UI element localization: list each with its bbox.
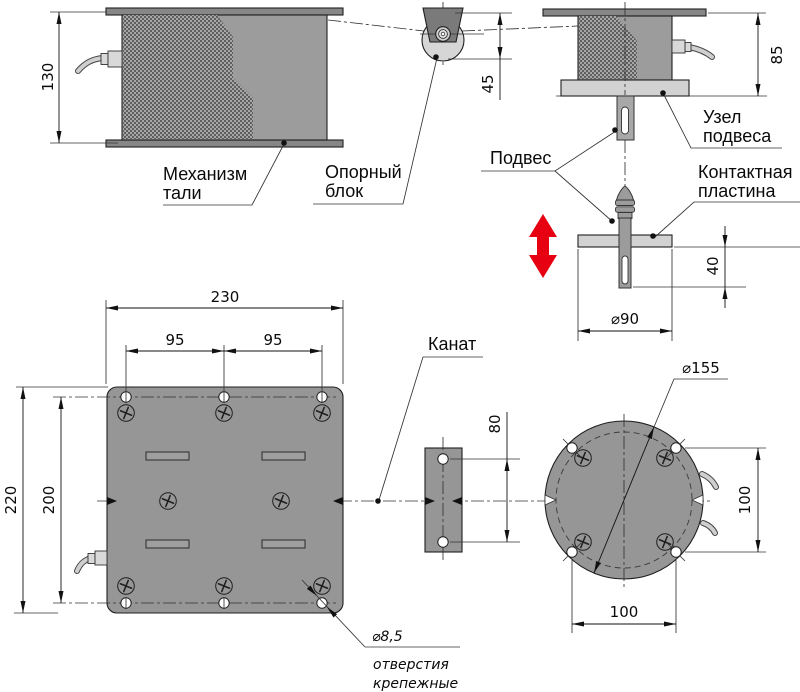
label-rope-text: Канат bbox=[428, 334, 476, 354]
rope-hole-icon bbox=[438, 537, 448, 547]
hoist-bottom-flange bbox=[106, 140, 343, 147]
screw-head-icon bbox=[118, 578, 135, 595]
dim-text-95-right: 95 bbox=[263, 331, 282, 349]
mounting-hole-icon bbox=[671, 547, 681, 557]
mounting-hole-icon bbox=[671, 443, 681, 453]
dim-95-right: 95 bbox=[224, 331, 322, 351]
rope-centerline-right bbox=[462, 26, 578, 31]
dim-130: 130 bbox=[39, 12, 118, 143]
mounting-hole-icon bbox=[317, 598, 327, 608]
leader-dot bbox=[433, 54, 439, 60]
note-line1: отверстия bbox=[373, 657, 449, 673]
dim-text-dia155: ⌀155 bbox=[682, 359, 720, 377]
dim-95-left: 95 bbox=[126, 331, 322, 391]
label-contact-line1: Контактная bbox=[698, 162, 793, 182]
cable-tab-upper-core bbox=[702, 474, 716, 487]
dim-85: 85 bbox=[708, 13, 786, 96]
screw-head-icon bbox=[575, 534, 592, 551]
view-suspension-unit: 85 Узел подвеса bbox=[543, 2, 786, 148]
label-unit-line1: Узел bbox=[703, 107, 741, 127]
screw-head-icon bbox=[160, 493, 177, 510]
dim-text-200: 200 bbox=[40, 486, 58, 515]
screw-head-icon bbox=[575, 450, 592, 467]
note-dia-text: ⌀8,5 bbox=[372, 629, 403, 645]
dim-text-100-v: 100 bbox=[736, 486, 754, 515]
dim-text-80: 80 bbox=[486, 414, 504, 433]
dim-text-dia90: ⌀90 bbox=[611, 310, 639, 328]
leader-dot bbox=[660, 90, 666, 96]
leader-dot bbox=[609, 218, 615, 224]
mounting-hole-icon bbox=[567, 443, 577, 453]
screw-head-icon bbox=[657, 450, 674, 467]
label-support-line1: Опорный bbox=[325, 162, 402, 182]
pulley-axle bbox=[441, 32, 445, 36]
screw-head-icon bbox=[216, 405, 233, 422]
view-base-plate: 230 95 95 220 200 bbox=[2, 288, 460, 692]
hoist-assembly-drawing: 130 Механизм тали 45 Опорный б bbox=[0, 0, 800, 692]
dim-text-85: 85 bbox=[768, 45, 786, 64]
screw-head-icon bbox=[118, 405, 135, 422]
leader-suspension-lower bbox=[555, 171, 613, 222]
view-rope-guide: 80 Канат bbox=[375, 334, 520, 563]
technical-drawing-page: 130 Механизм тали 45 Опорный б bbox=[0, 0, 800, 692]
cable-connector-icon bbox=[108, 51, 122, 67]
label-support-line2: блок bbox=[325, 181, 363, 201]
dim-dia90: ⌀90 bbox=[578, 310, 672, 331]
vent-slot bbox=[146, 540, 189, 548]
label-contact-line2: пластина bbox=[698, 181, 777, 201]
screw-head-icon bbox=[314, 578, 331, 595]
leader-dot bbox=[281, 140, 287, 146]
label-hoist-mechanism: Механизм тали bbox=[163, 140, 287, 205]
dim-text-45: 45 bbox=[479, 74, 497, 93]
note-line2: крепежные bbox=[373, 676, 458, 692]
screw-head-icon bbox=[657, 534, 674, 551]
dim-230: 230 bbox=[106, 288, 343, 384]
leader-dot bbox=[375, 498, 381, 504]
screw-head-icon bbox=[273, 493, 290, 510]
dim-text-220: 220 bbox=[2, 486, 20, 515]
vent-slot bbox=[262, 452, 305, 460]
stem-slot bbox=[622, 107, 629, 134]
dim-200: 200 bbox=[40, 397, 61, 603]
dim-text-40: 40 bbox=[704, 256, 722, 275]
pin-ring-1 bbox=[616, 200, 635, 206]
label-support-block: Опорный блок bbox=[313, 54, 439, 204]
cable-tab-lower-core bbox=[703, 523, 715, 533]
cable-connector-collar bbox=[685, 43, 691, 52]
mounting-hole-icon bbox=[567, 547, 577, 557]
hoist-top-flange bbox=[106, 8, 343, 15]
suspension-pin-assembly: Подвес Контактная пластина bbox=[481, 127, 800, 341]
view-flange-bottom: ⌀155 100 100 bbox=[545, 359, 766, 633]
unit-top-flange bbox=[543, 9, 706, 16]
dim-40: 40 bbox=[704, 226, 725, 308]
label-suspension: Подвес bbox=[481, 127, 618, 224]
rope-centerline-left bbox=[328, 20, 424, 31]
pin-tip bbox=[617, 186, 634, 200]
cable-connector-collar bbox=[101, 54, 108, 65]
cable-connector-icon bbox=[672, 40, 685, 53]
dim-text-130: 130 bbox=[39, 63, 57, 92]
pin-slot bbox=[622, 256, 628, 284]
pin-ring-2 bbox=[616, 207, 635, 213]
pulley-support-block: 45 Опорный блок bbox=[313, 2, 578, 204]
rope-hole-icon bbox=[438, 454, 448, 464]
vent-slot bbox=[146, 452, 189, 460]
label-hoist-line2: тали bbox=[163, 183, 202, 203]
leader-dot bbox=[612, 127, 618, 133]
cable-connector-collar bbox=[88, 554, 95, 564]
screw-head-icon bbox=[314, 405, 331, 422]
label-unit-line2: подвеса bbox=[703, 126, 772, 146]
cable-connector-icon bbox=[95, 551, 107, 565]
label-hoist-line1: Механизм bbox=[163, 164, 247, 184]
leader-contact bbox=[655, 202, 800, 237]
label-suspension-unit: Узел подвеса bbox=[660, 90, 782, 148]
dim-text-230: 230 bbox=[211, 288, 240, 306]
vent-slot bbox=[262, 540, 305, 548]
red-motion-arrow bbox=[529, 214, 557, 278]
label-suspension-text: Подвес bbox=[490, 148, 551, 168]
dim-text-95-left: 95 bbox=[165, 331, 184, 349]
screw-head-icon bbox=[216, 578, 233, 595]
dim-text-100-h: 100 bbox=[610, 603, 639, 621]
leader-dot bbox=[650, 233, 656, 239]
